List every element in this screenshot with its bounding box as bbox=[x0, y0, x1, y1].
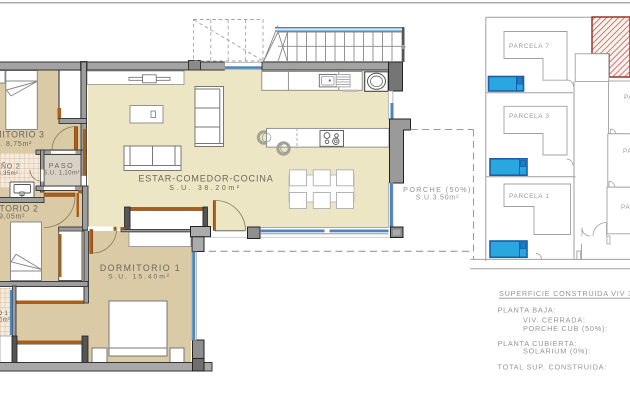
svg-text:SUPERFICIE CONSTRUIDA VIV 3 E: SUPERFICIE CONSTRUIDA VIV 3 E bbox=[499, 289, 630, 298]
svg-text:S.U. 15.40m²: S.U. 15.40m² bbox=[108, 274, 171, 281]
svg-text:PORCHE (50%): PORCHE (50%) bbox=[403, 185, 472, 194]
svg-text:DORMITORIO 2: DORMITORIO 2 bbox=[0, 204, 39, 214]
svg-text:BAÑO 1: BAÑO 1 bbox=[0, 310, 9, 317]
svg-text:DORMITORIO 3: DORMITORIO 3 bbox=[0, 130, 45, 140]
svg-text:PARCELA 1: PARCELA 1 bbox=[509, 193, 550, 200]
svg-text:S.U. 8,75m²: S.U. 8,75m² bbox=[0, 141, 32, 148]
svg-text:PASO: PASO bbox=[49, 161, 74, 170]
svg-text:S.U. 38.20m²: S.U. 38.20m² bbox=[169, 185, 241, 192]
svg-text:PARCELA 7: PARCELA 7 bbox=[509, 43, 550, 50]
svg-text:ESTAR-COMEDOR-COCINA: ESTAR-COMEDOR-COCINA bbox=[138, 174, 273, 184]
svg-text:S.U.3.50m²: S.U.3.50m² bbox=[416, 195, 459, 202]
svg-text:TOTAL SUP. CONSTRUIDA:: TOTAL SUP. CONSTRUIDA: bbox=[498, 362, 608, 371]
svg-text:PARC: PARC bbox=[624, 94, 630, 101]
svg-text:PORCHE CUB (50%):: PORCHE CUB (50%): bbox=[523, 324, 608, 333]
svg-text:S.U. 3,35m²: S.U. 3,35m² bbox=[0, 171, 18, 177]
svg-text:S.U. 3,50m²: S.U. 3,50m² bbox=[0, 318, 10, 324]
svg-text:S.U. 9,05m²: S.U. 9,05m² bbox=[0, 213, 25, 220]
svg-text:S.U. 1,10m²: S.U. 1,10m² bbox=[43, 171, 79, 177]
svg-text:SOLARIUM (0%):: SOLARIUM (0%): bbox=[523, 346, 591, 355]
svg-text:DORMITORIO 1: DORMITORIO 1 bbox=[100, 263, 181, 273]
svg-text:BAÑO 2: BAÑO 2 bbox=[0, 162, 20, 171]
svg-text:PLANTA BAJA:: PLANTA BAJA: bbox=[498, 306, 557, 315]
svg-text:PARCELA 3: PARCELA 3 bbox=[509, 113, 550, 120]
svg-text:PARC: PARC bbox=[621, 204, 630, 211]
svg-text:PARC: PARC bbox=[623, 148, 630, 155]
